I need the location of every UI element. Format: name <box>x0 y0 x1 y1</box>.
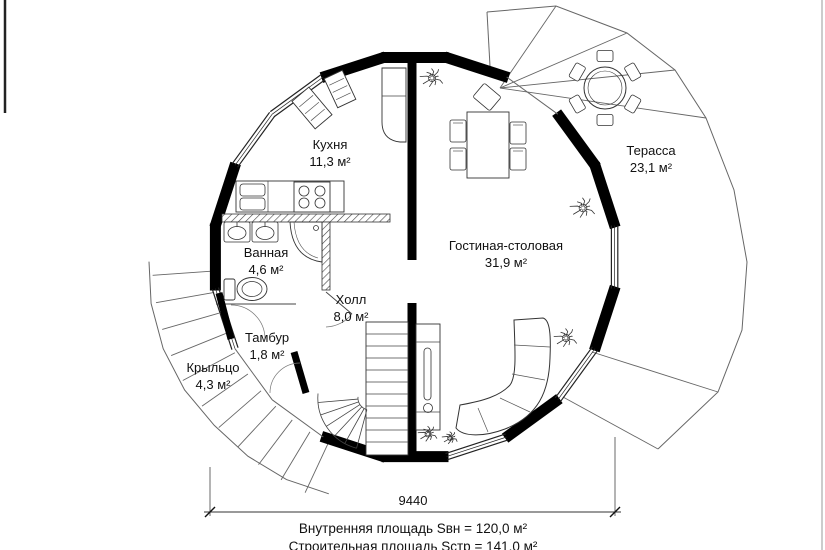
room-name: Ванная <box>244 244 289 261</box>
room-area: 23,1 м² <box>626 159 675 176</box>
room-label-living: Гостиная-столовая 31,9 м² <box>449 237 563 271</box>
room-name: Кухня <box>309 136 350 153</box>
room-area: 1,8 м² <box>245 346 289 363</box>
note-construction-area: Строительная площадь Sстр = 141,0 м² <box>289 539 538 550</box>
floor-plan-page: Кухня 11,3 м² Терасса 23,1 м² Ванная 4,6… <box>0 0 825 550</box>
note-internal-area: Внутренняя площадь Sвн = 120,0 м² <box>299 521 527 536</box>
room-area: 11,3 м² <box>309 153 350 170</box>
terrace-table <box>569 51 642 126</box>
room-name: Терасса <box>626 142 675 159</box>
room-name: Холл <box>334 291 369 308</box>
floor-plan-drawing <box>0 0 825 550</box>
fireplace-shelf <box>416 324 440 430</box>
room-area: 4,3 м² <box>186 376 239 393</box>
dimension-label: 9440 <box>399 493 428 508</box>
room-name: Крыльцо <box>186 359 239 376</box>
room-label-vestibule: Тамбур 1,8 м² <box>245 329 289 363</box>
room-label-hall: Холл 8,0 м² <box>334 291 369 325</box>
room-area: 4,6 м² <box>244 261 289 278</box>
room-area: 8,0 м² <box>334 308 369 325</box>
room-label-bathroom: Ванная 4,6 м² <box>244 244 289 278</box>
room-name: Тамбур <box>245 329 289 346</box>
room-area: 31,9 м² <box>449 254 563 271</box>
room-name: Гостиная-столовая <box>449 237 563 254</box>
dining-set <box>450 83 526 178</box>
room-label-kitchen: Кухня 11,3 м² <box>309 136 350 170</box>
room-label-porch: Крыльцо 4,3 м² <box>186 359 239 393</box>
room-label-terrace: Терасса 23,1 м² <box>626 142 675 176</box>
